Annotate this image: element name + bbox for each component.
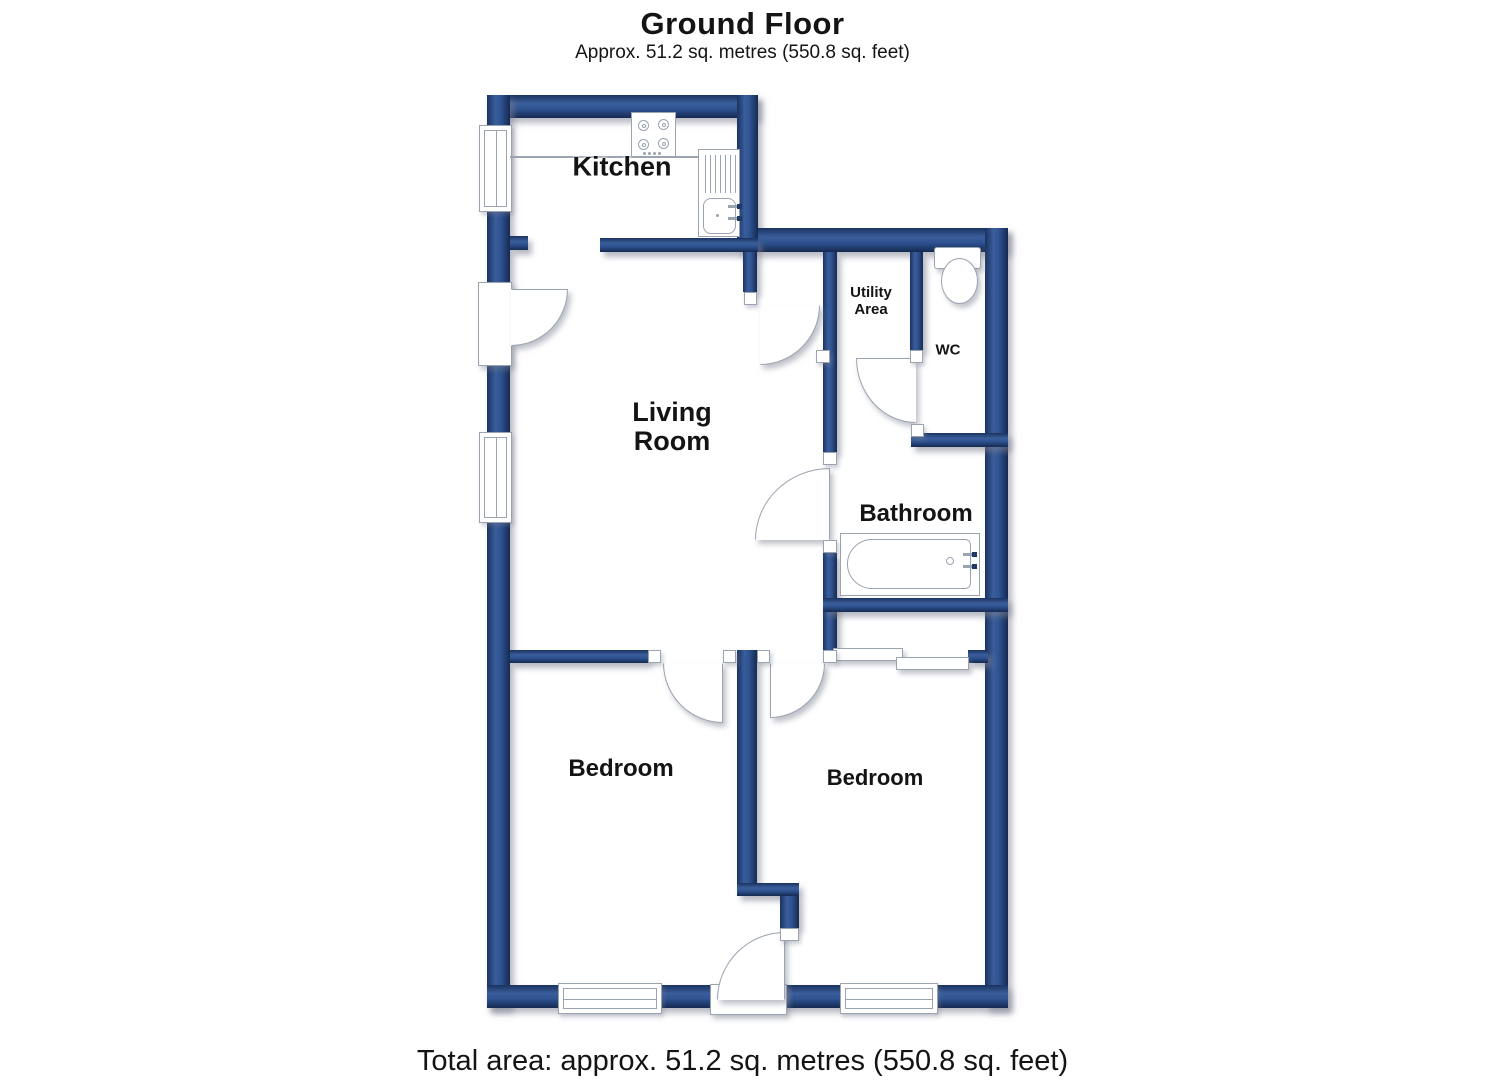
page-subtitle: Approx. 51.2 sq. metres (550.8 sq. feet): [0, 42, 1485, 64]
room-label-bedroom-right: Bedroom: [827, 765, 924, 791]
room-label-bedroom-left: Bedroom: [568, 755, 673, 783]
bedroom-right-window-icon: [840, 983, 938, 1014]
living-room-window-icon: [479, 432, 512, 523]
wall-kitchen-bottom: [600, 238, 758, 252]
wall-cap: [648, 650, 661, 663]
wall-utility-wc: [910, 252, 923, 350]
sliding-door-panel-icon: [896, 657, 969, 670]
wall-left: [487, 95, 510, 1008]
wall-divider-jog-h: [737, 883, 799, 896]
page-title: Ground Floor: [0, 6, 1485, 42]
room-label-wc: WC: [936, 342, 961, 359]
kitchen-window-icon: [479, 125, 512, 212]
bedroom-left-door-swing-icon: [663, 663, 723, 723]
wall-cap: [823, 540, 837, 553]
room-label-kitchen: Kitchen: [572, 152, 671, 183]
front-door-swing-icon: [717, 932, 785, 1000]
wall-bedroom-divider: [737, 650, 757, 883]
hob-icon: [631, 112, 676, 157]
wall-kitchen-stub-left: [510, 236, 528, 250]
floor-plan-page: Ground Floor Approx. 51.2 sq. metres (55…: [0, 0, 1485, 1080]
bedroom-left-window-icon: [558, 983, 662, 1014]
wall-bath-bottom: [823, 598, 1008, 612]
wall-hall-door-stub: [743, 252, 757, 292]
wall-cap: [744, 292, 757, 305]
bath-icon: [840, 533, 980, 596]
entrance-door-leaf: [478, 282, 512, 366]
sliding-door-panel-icon: [833, 648, 903, 661]
sink-icon: [698, 149, 740, 237]
wall-cap: [723, 650, 736, 663]
entrance-door-swing-icon: [511, 289, 568, 346]
hall-door-swing-icon: [760, 305, 820, 365]
room-label-bathroom: Bathroom: [859, 500, 972, 528]
wc-door-swing-icon: [856, 358, 916, 423]
wall-divider-jog-v: [780, 896, 799, 928]
wall-right: [985, 228, 1008, 1008]
wall-cap: [816, 350, 830, 363]
bedroom-right-door-swing-icon: [770, 663, 825, 718]
wall-wc-bath: [911, 433, 1008, 447]
total-area-text: Total area: approx. 51.2 sq. metres (550…: [0, 1045, 1485, 1078]
wall-cap: [780, 928, 799, 941]
bathroom-door-swing-icon: [755, 468, 830, 540]
wall-cap: [910, 350, 923, 363]
room-label-living-room: Living Room: [632, 398, 712, 456]
room-label-utility-area: Utility Area: [850, 284, 892, 319]
wall-sliding-stub: [968, 650, 988, 663]
wall-kitchen-right: [737, 95, 758, 252]
toilet-bowl-icon: [941, 258, 978, 304]
wall-cap: [823, 650, 837, 663]
wall-cap: [823, 452, 837, 465]
wall-kitchen-top: [487, 95, 758, 118]
wall-cap: [911, 424, 924, 437]
wall-bedroom-top: [510, 650, 648, 663]
wall-cap: [757, 650, 770, 663]
